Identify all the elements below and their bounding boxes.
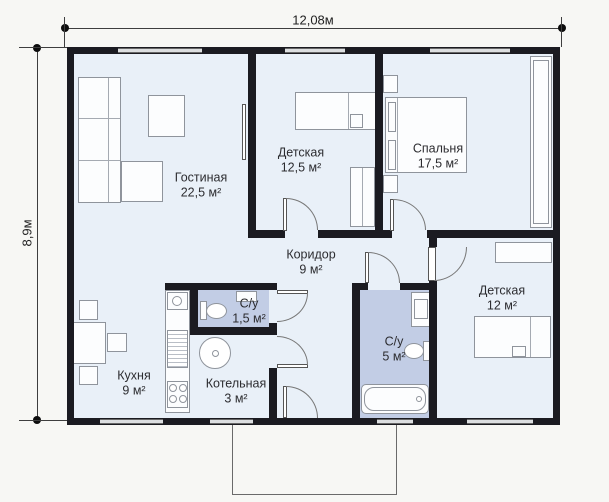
- bathtub-drain: [416, 396, 422, 402]
- wall-corridor-top: [248, 230, 285, 238]
- dimension-extension: [561, 17, 562, 47]
- vanity-basin: [414, 299, 428, 319]
- nightstand: [383, 75, 398, 93]
- window: [467, 419, 533, 424]
- dimension-height-label: 8,9м: [20, 219, 35, 246]
- wall-wc15-bottom: [190, 327, 277, 335]
- room-area: 3 м²: [206, 391, 267, 406]
- room-name: Кухня: [117, 368, 150, 383]
- stove-burner: [179, 384, 187, 392]
- sofa-corner-section: [121, 161, 163, 202]
- room-area: 9 м²: [117, 383, 150, 398]
- wall-wc5-top: [400, 283, 437, 290]
- dimension-extension: [64, 17, 65, 47]
- room-name: Детская: [479, 283, 525, 298]
- room-area: 5 м²: [382, 349, 405, 364]
- room-area: 22,5 м²: [175, 185, 227, 200]
- porch-outline: [232, 425, 397, 495]
- dimension-dot: [558, 24, 566, 32]
- dimension-dot: [33, 44, 41, 52]
- room-area: 9 м²: [286, 262, 335, 277]
- room-name: Гостиная: [175, 170, 227, 185]
- wardrobe-inner: [533, 60, 549, 224]
- living-table: [148, 95, 185, 137]
- room-label-kids1: Детская 12,5 м²: [278, 145, 324, 175]
- stove-burner: [169, 384, 177, 392]
- window: [285, 48, 345, 53]
- dimension-dot: [61, 24, 69, 32]
- window: [210, 419, 253, 424]
- dimension-line-left: [37, 48, 38, 420]
- room-label-living: Гостиная 22,5 м²: [175, 170, 227, 200]
- chair: [79, 300, 98, 320]
- wall-outer-left: [67, 47, 74, 425]
- room-name: Коридор: [286, 247, 335, 262]
- window: [377, 419, 413, 424]
- single-bed: [295, 92, 378, 130]
- window: [118, 48, 202, 53]
- wardrobe-divider: [362, 168, 363, 226]
- room-area: 1,5 м²: [232, 311, 266, 326]
- wall-kids-bedroom: [375, 54, 383, 230]
- wall-kitchen-top: [165, 283, 277, 290]
- wall-living-kids: [248, 54, 256, 230]
- window: [100, 419, 163, 424]
- room-area: 12 м²: [479, 298, 525, 313]
- room-name: Детская: [278, 145, 324, 160]
- room-label-kitchen: Кухня 9 м²: [117, 368, 150, 398]
- pillow: [388, 102, 396, 132]
- shelf: [495, 242, 552, 263]
- boiler-center: [212, 350, 219, 357]
- bed-headboard-line: [397, 98, 398, 172]
- dimension-extension: [19, 420, 67, 421]
- room-label-wc-small: С/у 1,5 м²: [232, 296, 266, 326]
- dimension-line-top: [65, 28, 562, 29]
- room-area: 12,5 м²: [278, 160, 324, 175]
- chair: [79, 366, 98, 385]
- dining-table: [73, 322, 106, 364]
- room-area: 17,5 м²: [413, 156, 463, 171]
- kitchen-cabinet: [167, 330, 188, 368]
- wall-wc5-top: [352, 283, 368, 290]
- wall-wc5-left: [352, 283, 360, 418]
- wall-corridor-top: [318, 230, 392, 238]
- stove-burner: [179, 395, 187, 403]
- room-name: Котельная: [206, 376, 267, 391]
- kitchen-sink-basin: [172, 296, 182, 306]
- wall-kids2-stub: [429, 238, 437, 247]
- sofa-seam: [79, 118, 120, 119]
- room-label-kids2: Детская 12 м²: [479, 283, 525, 313]
- wall-bedroom-bottom: [427, 230, 553, 238]
- bed-footer: [512, 346, 526, 357]
- wall-hall-left: [269, 323, 277, 335]
- pillow: [388, 140, 396, 170]
- wall-boiler-right: [269, 368, 277, 418]
- sofa: [78, 77, 121, 203]
- bed-divider: [348, 93, 349, 129]
- sofa-seam: [79, 160, 120, 161]
- wall-kids2-left: [429, 281, 437, 418]
- dimension-width-label: 12,08м: [292, 13, 333, 28]
- chair: [107, 333, 127, 352]
- room-label-bedroom: Спальня 17,5 м²: [413, 141, 463, 171]
- toilet-bowl: [206, 303, 227, 319]
- floor-plan-canvas: 12,08м 8,9м Гостиная 22,5 м² Детская 12,…: [0, 0, 609, 502]
- room-label-corridor: Коридор 9 м²: [286, 247, 335, 277]
- nightstand: [383, 175, 398, 193]
- pillow: [350, 114, 363, 128]
- room-label-boiler: Котельная 3 м²: [206, 376, 267, 406]
- dimension-extension: [19, 47, 67, 48]
- room-name: Спальня: [413, 141, 463, 156]
- window: [430, 48, 510, 53]
- stove-burner: [169, 395, 177, 403]
- bed-divider: [530, 317, 531, 357]
- sliding-door-leaf: [242, 104, 246, 160]
- room-label-wc-big: С/у 5 м²: [382, 334, 405, 364]
- room-name: С/у: [232, 296, 266, 311]
- wall-outer-right: [553, 47, 560, 425]
- toilet-bowl: [404, 343, 424, 359]
- sofa-backrest-line: [108, 78, 109, 202]
- room-name: С/у: [382, 334, 405, 349]
